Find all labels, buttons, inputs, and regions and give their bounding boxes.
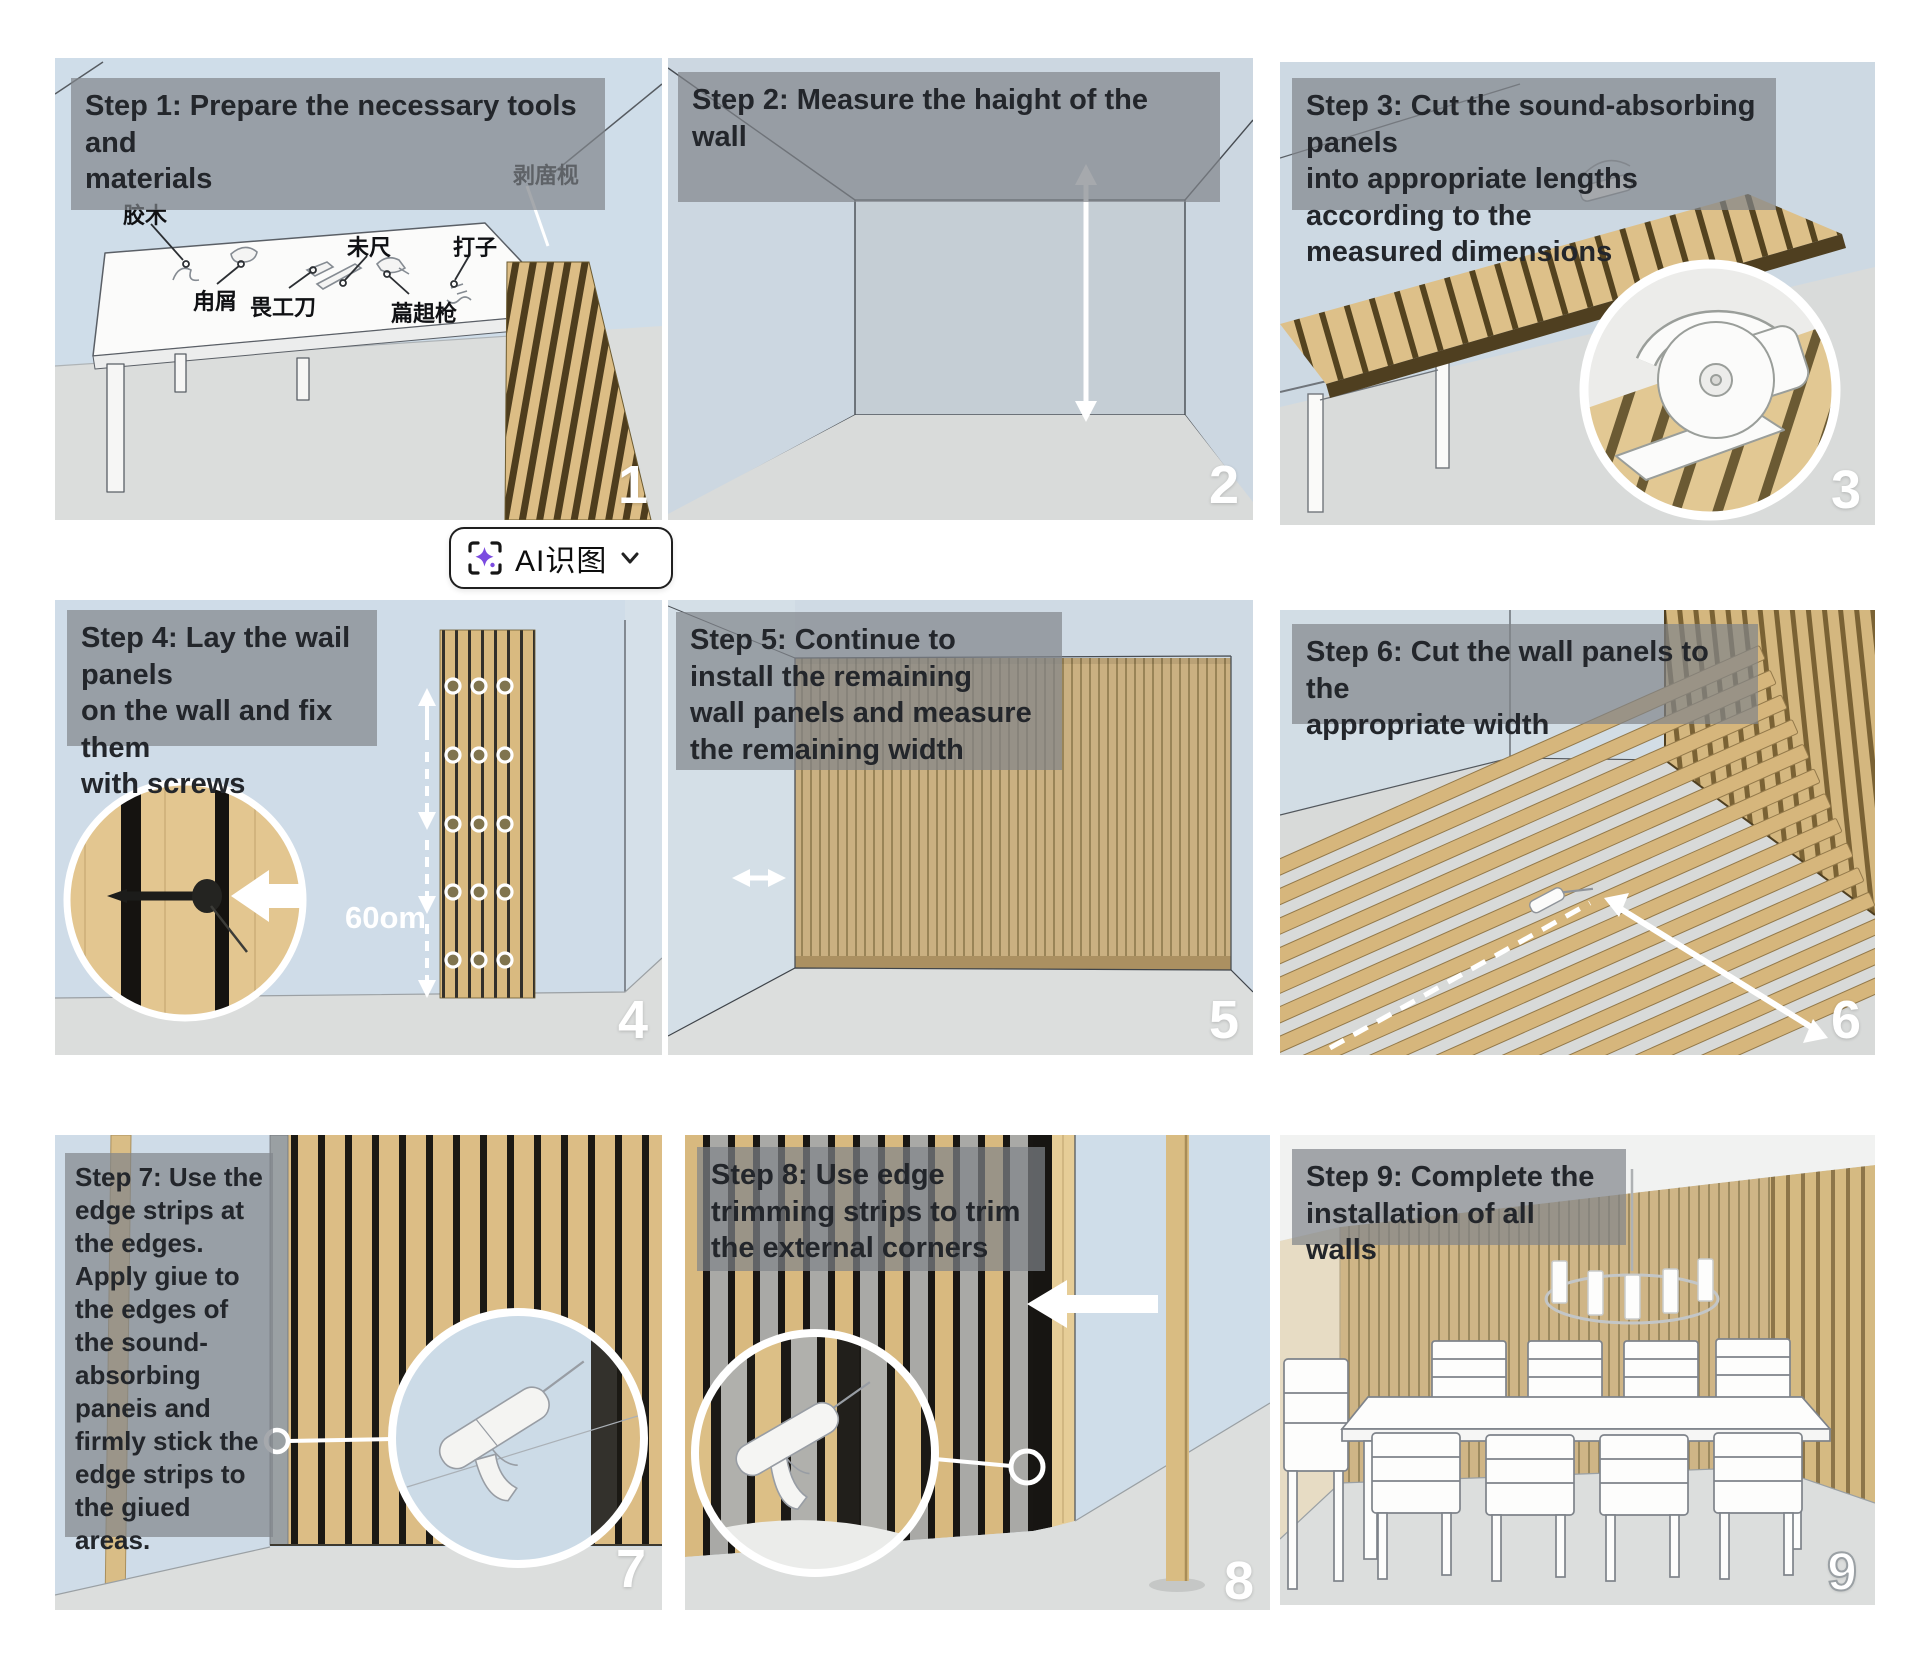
step-number-badge: 4 bbox=[618, 993, 648, 1047]
step-number-badge: 3 bbox=[1831, 463, 1861, 517]
step-number-badge: 1 bbox=[618, 458, 648, 512]
tool-label-ruler: 未尺 bbox=[347, 230, 391, 262]
step-number-badge: 9 bbox=[1827, 1545, 1857, 1599]
spacing-measurement-label: 60om bbox=[345, 900, 426, 936]
step-panel-3: Step 3: Cut the sound-absorbing panels i… bbox=[1280, 62, 1875, 525]
tool-label-nails: 打子 bbox=[453, 230, 497, 262]
ai-scan-sparkle-icon bbox=[467, 540, 503, 576]
step-caption: Step 8: Use edge trimming strips to trim… bbox=[697, 1147, 1045, 1271]
step-number-badge: 6 bbox=[1831, 993, 1861, 1047]
step-caption: Step 2: Measure the haight of the wall bbox=[678, 72, 1220, 202]
step-panel-4: 60om Step 4: Lay the wail panels on the … bbox=[55, 600, 662, 1055]
step-panel-5: Step 5: Continue to install the remainin… bbox=[668, 600, 1253, 1055]
step-panel-8: Step 8: Use edge trimming strips to trim… bbox=[685, 1135, 1270, 1610]
instruction-sheet: 胶木 甪屑 未尺 畏工刀 打子 萹趄枪 剥庿枧 Step 1: Prepare … bbox=[0, 0, 1920, 1663]
step-number-badge: 2 bbox=[1209, 458, 1239, 512]
step-panel-7: Step 7: Use the edge strips at the edges… bbox=[55, 1135, 662, 1610]
step-panel-9: Step 9: Complete the installation of all… bbox=[1280, 1135, 1875, 1605]
step-number-badge: 8 bbox=[1224, 1554, 1254, 1608]
tool-label-gun: 萹趄枪 bbox=[391, 296, 457, 328]
step-number-badge: 5 bbox=[1209, 993, 1239, 1047]
step-caption: Step 4: Lay the wail panels on the wall … bbox=[67, 610, 377, 746]
tool-label-scraper: 甪屑 bbox=[193, 284, 237, 316]
step-caption: Step 9: Complete the installation of all… bbox=[1292, 1149, 1626, 1245]
step-panel-2: Step 2: Measure the haight of the wall 2 bbox=[668, 58, 1253, 520]
step-panel-1: 胶木 甪屑 未尺 畏工刀 打子 萹趄枪 剥庿枧 Step 1: Prepare … bbox=[55, 58, 662, 520]
step-caption: Step 5: Continue to install the remainin… bbox=[676, 612, 1062, 770]
step-caption: Step 7: Use the edge strips at the edges… bbox=[65, 1153, 273, 1537]
step-panel-6: Step 6: Cut the wall panels to the appro… bbox=[1280, 610, 1875, 1055]
chevron-down-icon bbox=[619, 550, 641, 566]
tool-label-knife: 畏工刀 bbox=[250, 290, 316, 322]
ai-button-label: AI识图 bbox=[515, 536, 607, 580]
step-caption: Step 1: Prepare the necessary tools and … bbox=[71, 78, 605, 210]
step-caption: Step 3: Cut the sound-absorbing panels i… bbox=[1292, 78, 1776, 210]
step-caption: Step 6: Cut the wall panels to the appro… bbox=[1292, 624, 1758, 724]
ai-image-recognition-button[interactable]: AI识图 bbox=[449, 527, 673, 589]
step-number-badge: 7 bbox=[616, 1542, 646, 1596]
